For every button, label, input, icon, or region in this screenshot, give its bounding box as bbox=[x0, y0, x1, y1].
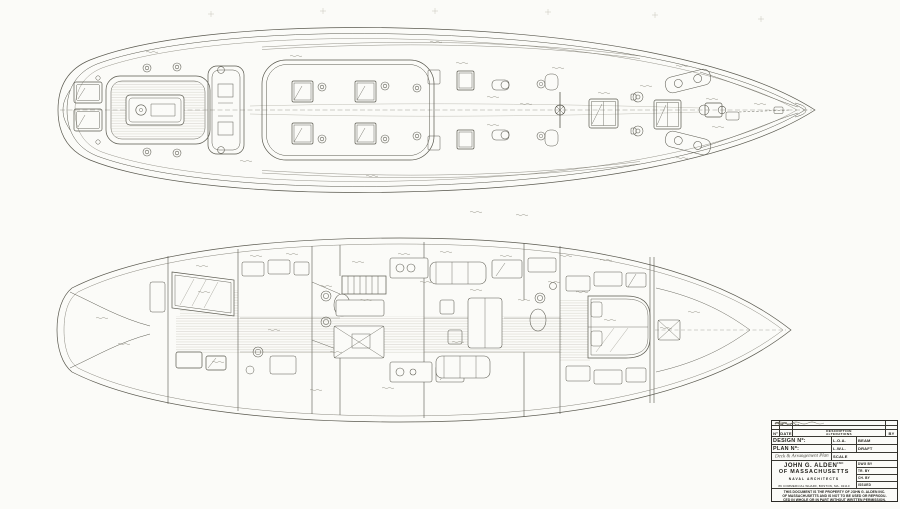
cockpit bbox=[96, 76, 210, 144]
firm-subtitle: NAVAL ARCHITECTS bbox=[789, 476, 839, 482]
plan-no-row: PLAN Nº: L.W.L. DRAFT bbox=[772, 445, 897, 453]
rev-description-header: DESCRIPTION ALTERATIONS bbox=[793, 430, 886, 436]
tr-by-label: TR. BY bbox=[858, 469, 870, 473]
rev-by-header: BY bbox=[889, 431, 895, 436]
rev-no-header: Nº bbox=[773, 431, 778, 436]
deck-plan bbox=[58, 28, 815, 193]
issued-label: ISSUED bbox=[858, 483, 871, 487]
tr-by-row: TR. BY bbox=[857, 468, 897, 475]
issued-row: ISSUED bbox=[857, 482, 897, 488]
firm-identity: JOHN G. ALDENINC OF MASSACHUSETTS NAVAL … bbox=[772, 461, 857, 488]
credits-column: DWG BY TR. BY CH. BY ISSUED bbox=[857, 461, 897, 488]
issued-value-scribble bbox=[774, 421, 788, 425]
title-block: Nº DATE DESCRIPTION ALTERATIONS BY DESIG… bbox=[771, 420, 898, 502]
firm-name-line1: JOHN G. ALDENINC bbox=[784, 461, 844, 469]
aft-lazarette bbox=[70, 282, 165, 368]
revision-header-row: Nº DATE DESCRIPTION ALTERATIONS BY bbox=[772, 430, 897, 437]
yacht-plan-linework bbox=[0, 0, 900, 509]
loa-label: L.O.A. bbox=[833, 438, 846, 443]
firm-name-suffix: INC bbox=[837, 461, 844, 465]
skylight-hatches bbox=[292, 81, 376, 144]
handwritten-plan-title: Deck & Arrangement Plan bbox=[775, 454, 829, 460]
ch-by-row: CH. BY bbox=[857, 475, 897, 482]
dwg-by-label: DWG BY bbox=[858, 462, 872, 466]
firm-name-line2: OF MASSACHUSETTS bbox=[779, 469, 849, 475]
coachroof-winches bbox=[318, 82, 421, 143]
station-marks bbox=[208, 8, 764, 22]
engine-space bbox=[334, 300, 384, 358]
scale-label: SCALE bbox=[833, 454, 848, 459]
lwl-label: L.W.L. bbox=[833, 446, 846, 451]
dwg-by-row: DWG BY bbox=[857, 461, 897, 468]
revision-note-scribble bbox=[793, 426, 886, 430]
disclaimer-row: THIS DOCUMENT IS THE PROPERTY OF JOHN G.… bbox=[772, 489, 897, 503]
mid-sheet-notes bbox=[470, 211, 528, 215]
rev-date-header: DATE bbox=[780, 431, 791, 436]
lazarette-hatches bbox=[74, 82, 102, 131]
beam-label: BEAM bbox=[858, 438, 871, 443]
fore-skylights bbox=[589, 99, 681, 129]
design-no-label: DESIGN Nº: bbox=[773, 438, 806, 444]
plan-no-label: PLAN Nº: bbox=[773, 446, 799, 452]
ch-by-label: CH. BY bbox=[858, 476, 870, 480]
drawing-sheet: Nº DATE DESCRIPTION ALTERATIONS BY DESIG… bbox=[0, 0, 900, 509]
firm-row: JOHN G. ALDENINC OF MASSACHUSETTS NAVAL … bbox=[772, 461, 897, 489]
deck-plan-annotations bbox=[146, 41, 766, 176]
firm-address: 89 COMMERCIAL WHARF, BOSTON, MA. 02110 bbox=[778, 483, 849, 488]
design-no-row: DESIGN Nº: L.O.A. BEAM bbox=[772, 437, 897, 445]
arrangement-plan bbox=[57, 238, 791, 422]
disclaimer-text: THIS DOCUMENT IS THE PROPERTY OF JOHN G.… bbox=[772, 489, 897, 503]
plan-title-row: Deck & Arrangement Plan SCALE bbox=[772, 453, 897, 461]
draft-label: DRAFT bbox=[858, 446, 873, 451]
companionway-ladder bbox=[342, 276, 386, 294]
